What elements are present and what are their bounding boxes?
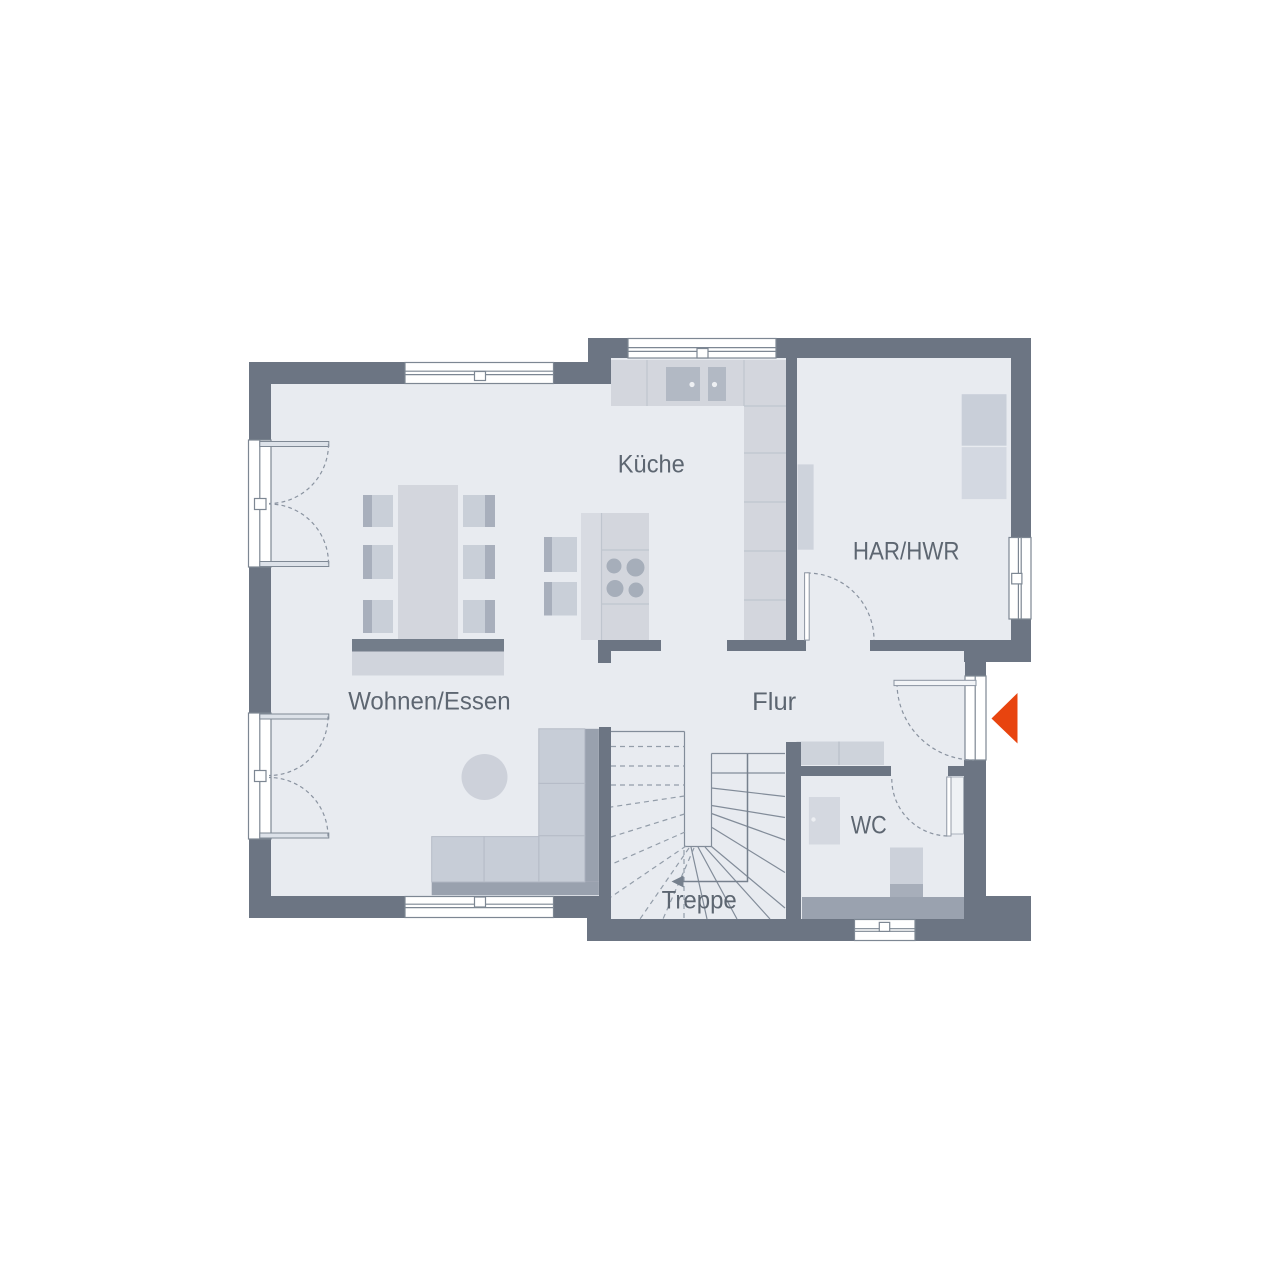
svg-text:Treppe: Treppe (662, 886, 737, 914)
svg-text:Küche: Küche (618, 451, 685, 479)
svg-text:WC: WC (851, 812, 887, 840)
svg-text:Wohnen/Essen: Wohnen/Essen (348, 688, 510, 716)
svg-text:HAR/HWR: HAR/HWR (853, 538, 960, 566)
svg-text:Flur: Flur (752, 688, 796, 716)
